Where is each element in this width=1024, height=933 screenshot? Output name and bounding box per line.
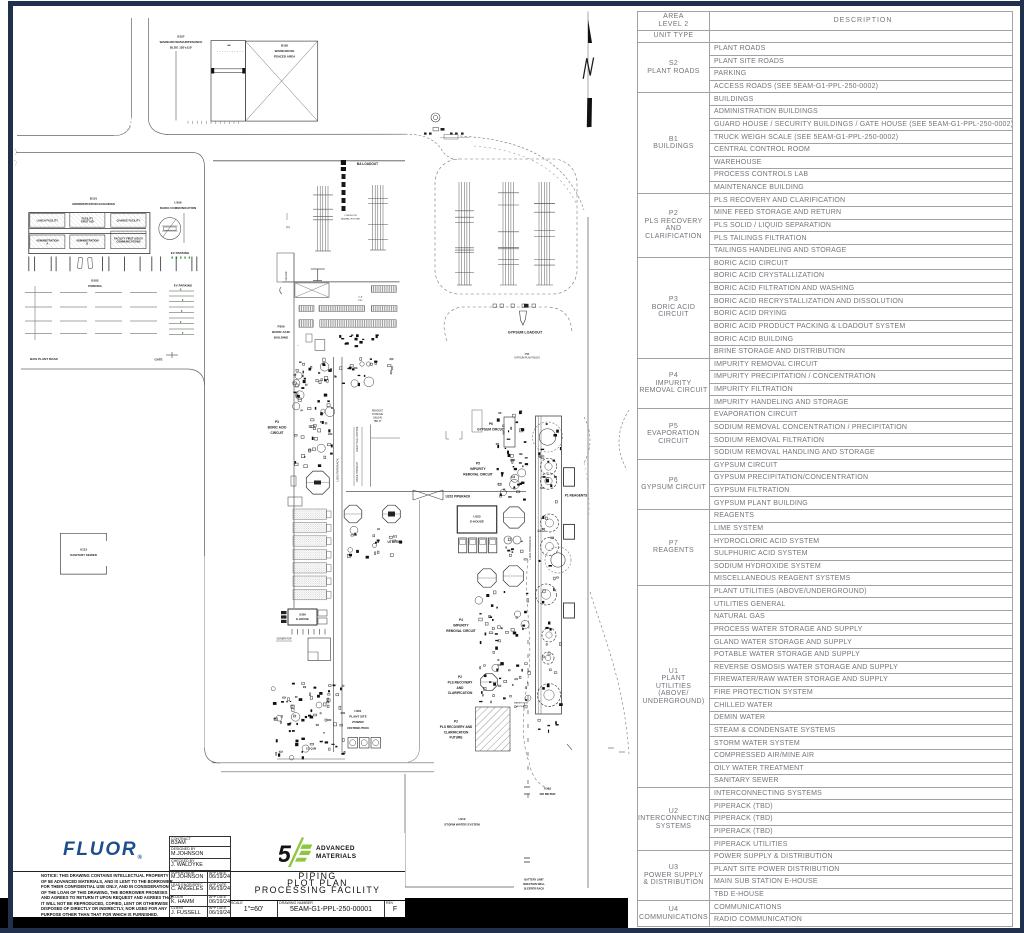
svg-text:PLS RECOVERY: PLS RECOVERY (448, 680, 474, 684)
svg-text:EV PARKING: EV PARKING (174, 284, 193, 288)
svg-text:U300: U300 (299, 613, 306, 617)
svg-text:BLDG 120'x110': BLDG 120'x110' (170, 46, 193, 50)
svg-text:CLARIFICATION: CLARIFICATION (444, 730, 469, 734)
svg-text:BORIC ACID: BORIC ACID (268, 426, 288, 430)
svg-text:P2: P2 (458, 675, 462, 679)
svg-text:U113: U113 (80, 548, 87, 552)
svg-text:U301: U301 (354, 709, 362, 713)
svg-text:B201 PLANT ROAD: B201 PLANT ROAD (30, 357, 59, 361)
svg-text:E-HOUSE: E-HOUSE (296, 617, 309, 621)
svg-text:U103: U103 (473, 515, 481, 519)
svg-text:DRIVE THROUGH: DRIVE THROUGH (357, 462, 359, 482)
svg-text:P2: P2 (454, 720, 458, 724)
svg-text:IMPURITY: IMPURITY (453, 624, 469, 628)
svg-text:TBD FT: TBD FT (373, 421, 382, 423)
svg-text:SANITARY SEWER: SANITARY SEWER (70, 553, 98, 557)
svg-text:REMOVAL CIRCUIT: REMOVAL CIRCUIT (446, 629, 476, 633)
svg-text:U-E: U-E (359, 297, 363, 299)
svg-text:P1 REAGENTS: P1 REAGENTS (565, 494, 588, 498)
svg-text:[C]: [C] (286, 225, 290, 229)
svg-text:P5: P5 (476, 462, 480, 466)
svg-text:DISTRIBUTION: DISTRIBUTION (347, 726, 368, 730)
svg-text:ADMINISTRATION BUILDINGS: ADMINISTRATION BUILDINGS (72, 202, 115, 206)
svg-text:AND: AND (457, 686, 465, 690)
svg-text:180x240: 180x240 (373, 418, 383, 420)
svg-text:BORIC ACID: BORIC ACID (272, 330, 291, 334)
svg-text:WAREHOUSE: WAREHOUSE (514, 702, 529, 705)
svg-text:REAGENT: REAGENT (372, 410, 384, 413)
svg-text:CIRCUIT: CIRCUIT (271, 431, 284, 435)
svg-text:IMPURITY: IMPURITY (470, 467, 486, 471)
svg-text:NO METER: NO METER (540, 792, 557, 796)
svg-text:BA LOADOUT: BA LOADOUT (357, 162, 378, 166)
svg-text:WAREHOUSE/MAINTENANCE: WAREHOUSE/MAINTENANCE (160, 40, 203, 44)
svg-text:U202 PIPERACK: U202 PIPERACK (446, 495, 472, 499)
svg-text:CHANGE FACILITY: CHANGE FACILITY (117, 218, 141, 222)
svg-text:P3: P3 (275, 420, 279, 424)
svg-text:ANALYTICAL CONTROL: ANALYTICAL CONTROL (356, 425, 359, 451)
svg-text:PARKING: PARKING (88, 284, 102, 288)
svg-text:GYPSUM LOADOUT: GYPSUM LOADOUT (508, 331, 543, 335)
svg-text:GRADE: GRADE (284, 271, 288, 280)
svg-text:B107: B107 (177, 35, 185, 39)
svg-text:CC-Q1M: CC-Q1M (306, 747, 316, 751)
svg-text:FIRST AID: FIRST AID (81, 220, 94, 224)
svg-text:B101: B101 (90, 197, 98, 201)
svg-text:WAREHOUSE: WAREHOUSE (275, 49, 295, 53)
svg-text:PILL: PILL (358, 300, 363, 302)
svg-text:GYPSUM PLANT BLDG: GYPSUM PLANT BLDG (514, 357, 540, 360)
svg-text:E-HOUSE: E-HOUSE (470, 519, 484, 523)
svg-text:U106: U106 (174, 201, 182, 205)
svg-text:P6: P6 (489, 422, 493, 426)
svg-text:CONVEYOR: CONVEYOR (344, 215, 357, 217)
svg-text:CLARIFICATION: CLARIFICATION (448, 691, 473, 695)
svg-text:GATE: GATE (154, 358, 162, 362)
svg-text:EV PARKING: EV PARKING (171, 251, 190, 255)
svg-text:A: A (46, 241, 48, 245)
svg-text:STORM WATER SYSTEM: STORM WATER SYSTEM (444, 822, 480, 826)
svg-text:P5B: P5B (525, 353, 530, 356)
svg-text:FENCED AREA: FENCED AREA (274, 55, 296, 59)
svg-text:FUTURE: FUTURE (450, 736, 463, 740)
svg-text:U1: U1 (393, 535, 397, 539)
svg-text:U112: U112 (458, 817, 465, 821)
svg-text:STORAGE: STORAGE (372, 413, 384, 416)
svg-text:(RADIAL) FUTURE: (RADIAL) FUTURE (341, 217, 360, 220)
svg-text:GENERATOR: GENERATOR (277, 638, 292, 641)
svg-text:LUNCH FACILITY: LUNCH FACILITY (37, 218, 59, 222)
svg-text:BUILDING: BUILDING (274, 336, 289, 340)
svg-text:P4: P4 (459, 618, 463, 622)
svg-text:SLEEPER RACK: SLEEPER RACK (524, 887, 544, 891)
svg-text:COMMUNICATIONS: COMMUNICATIONS (116, 240, 140, 244)
svg-text:U203 PIPERACK: U203 PIPERACK (336, 458, 340, 481)
svg-text:PLANT SITE: PLANT SITE (349, 715, 367, 719)
svg-text:U201 PIPERACK: U201 PIPERACK (528, 536, 532, 559)
svg-text:REMOVAL CIRCUIT: REMOVAL CIRCUIT (463, 473, 493, 477)
svg-text:▪: ▪ (298, 344, 299, 347)
svg-text:RADIO COMMUNICATION: RADIO COMMUNICATION (160, 206, 196, 210)
svg-text:B: B (86, 241, 88, 245)
svg-text:U101: U101 (544, 787, 552, 791)
svg-text:GYPSUM CIRCUIT: GYPSUM CIRCUIT (477, 428, 505, 432)
svg-text:ACCESS: ACCESS (517, 705, 527, 708)
svg-text:B105: B105 (281, 44, 289, 48)
svg-text:POWER: POWER (352, 720, 364, 724)
svg-text:P306: P306 (277, 325, 284, 329)
svg-text:BATTERY LIMIT: BATTERY LIMIT (524, 878, 544, 882)
svg-text:PLS RECOVERY AND: PLS RECOVERY AND (440, 725, 473, 729)
svg-text:INJECTION WELL: INJECTION WELL (523, 882, 545, 886)
svg-text:B102: B102 (91, 279, 99, 283)
